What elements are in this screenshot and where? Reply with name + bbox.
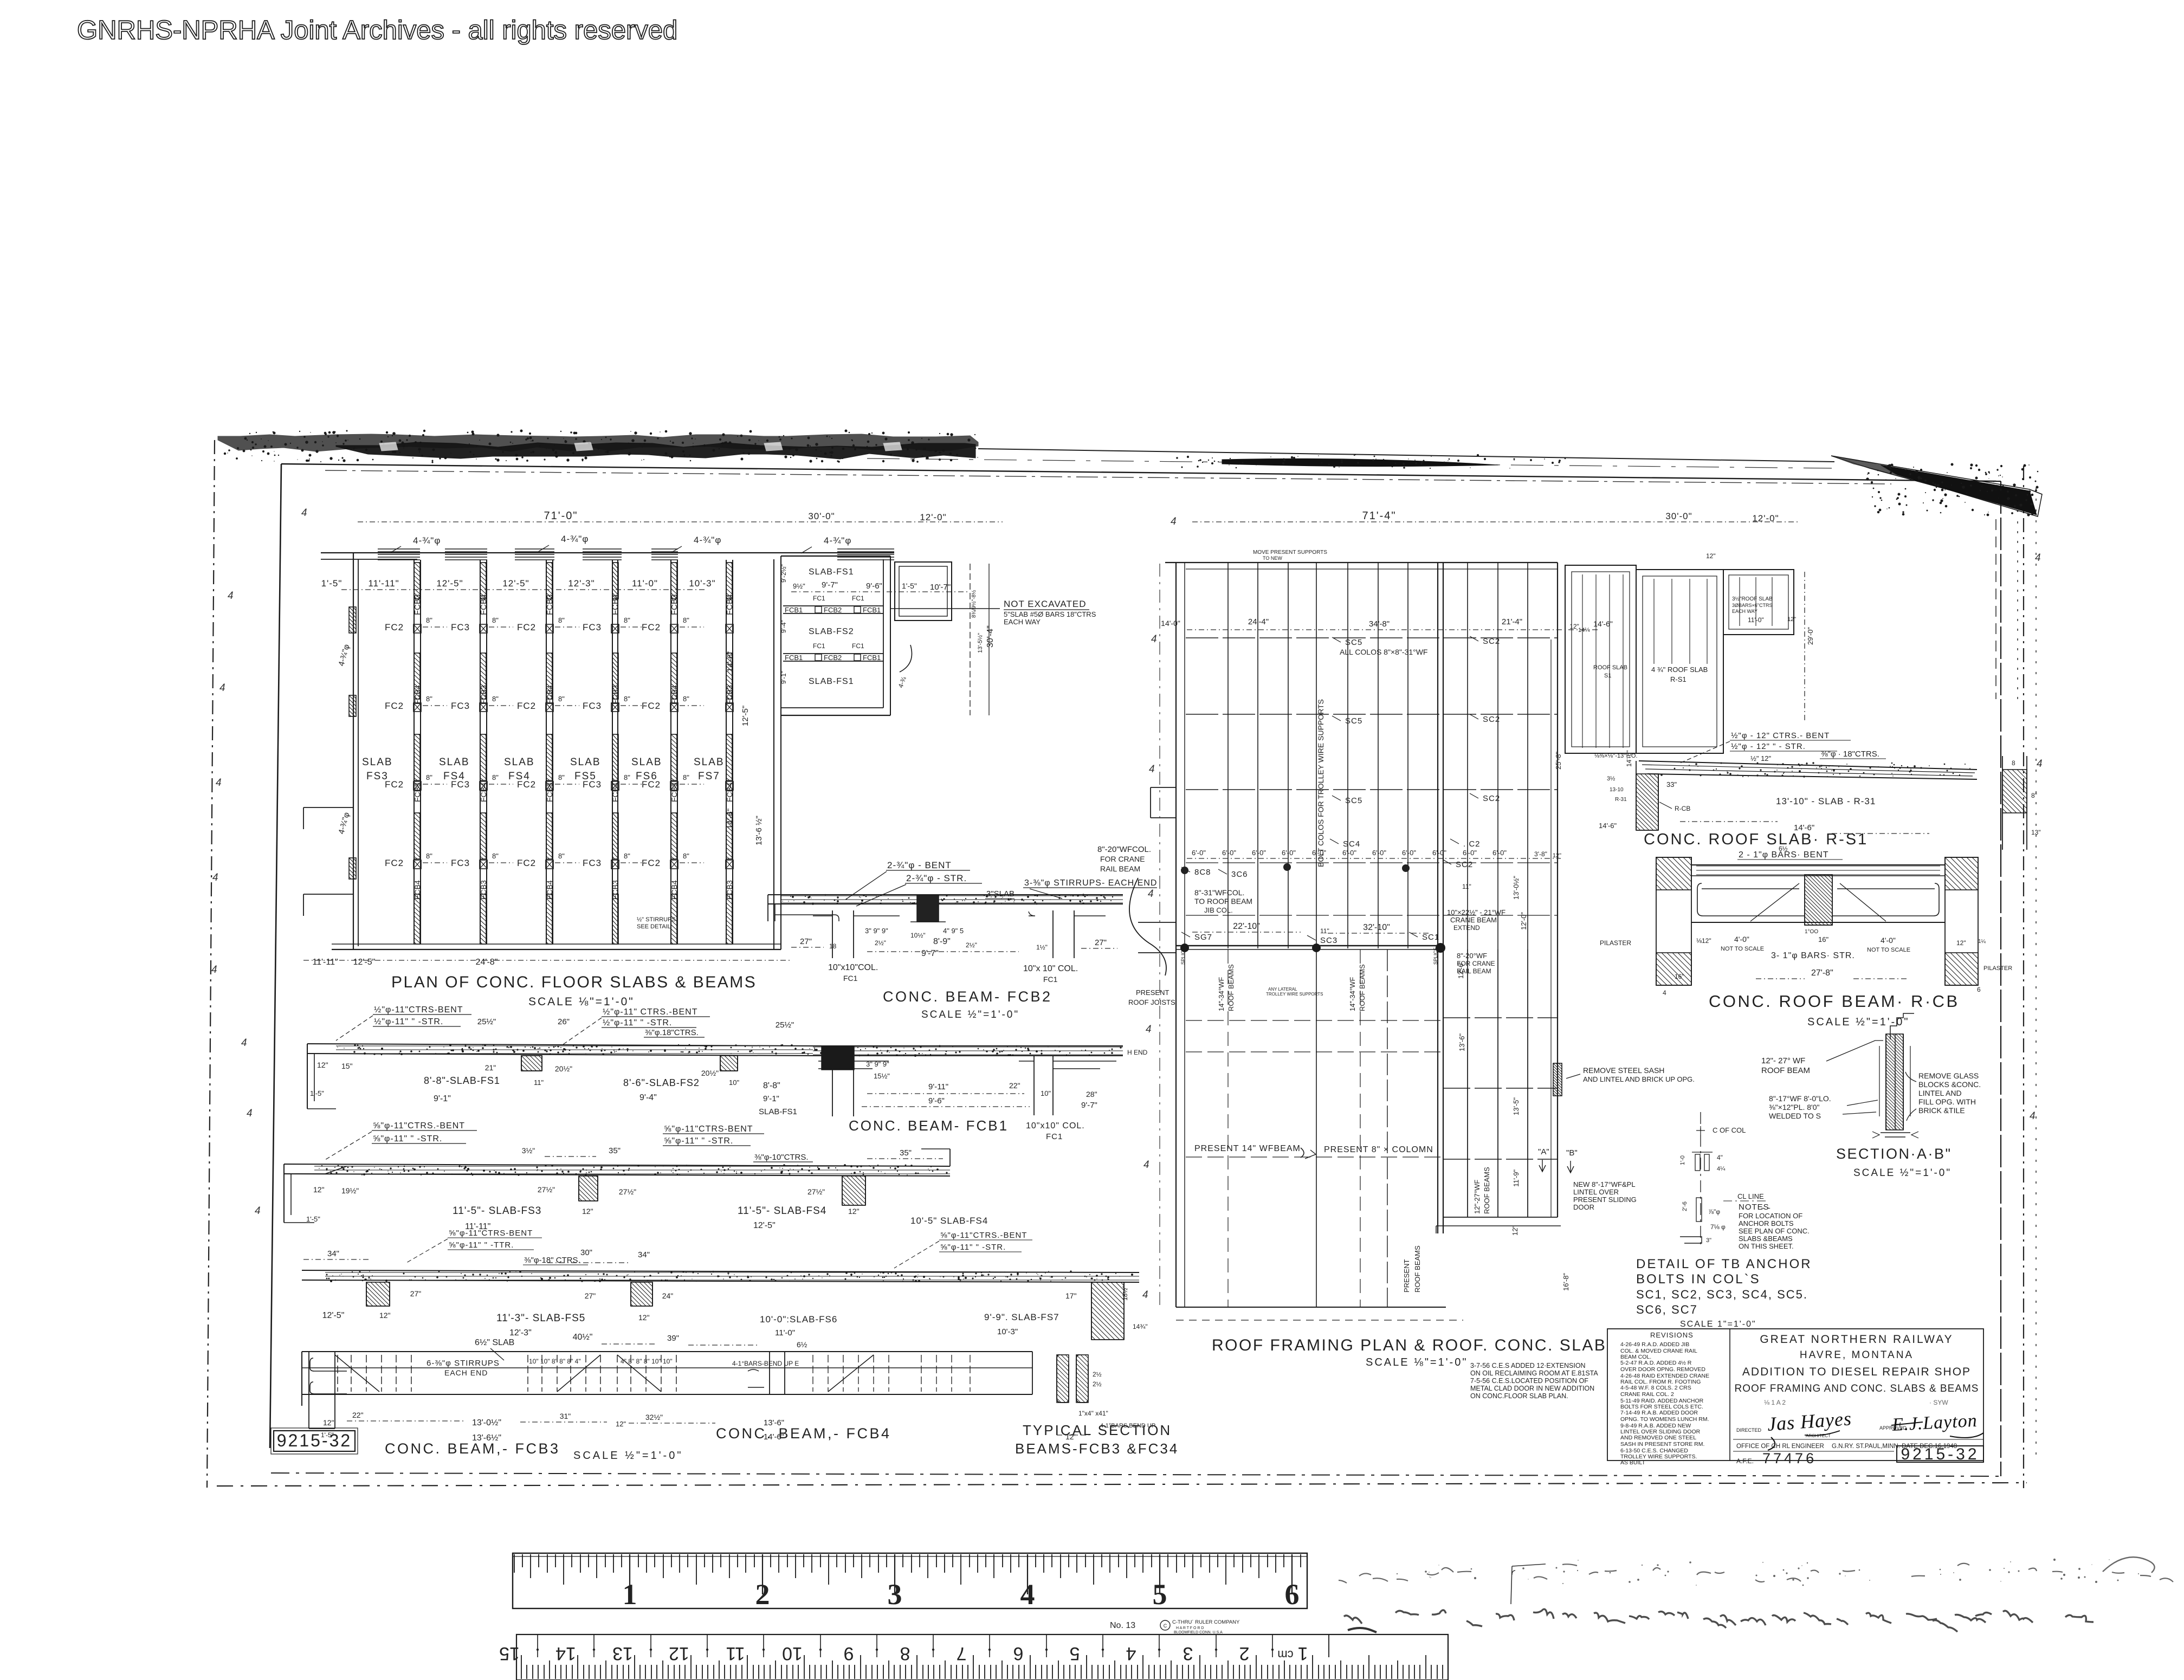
svg-text:GREAT NORTHERN RAILWAY: GREAT NORTHERN RAILWAY xyxy=(1760,1333,1953,1346)
svg-text:4: 4 xyxy=(1143,1159,1149,1171)
svg-text:12'-5": 12'-5" xyxy=(353,958,376,967)
svg-text:12'-5": 12'-5" xyxy=(322,1311,345,1320)
svg-text:4: 4 xyxy=(1148,888,1154,900)
svg-text:14¾": 14¾" xyxy=(1133,1323,1148,1330)
svg-text:SECTION·A·B": SECTION·A·B" xyxy=(1836,1146,1952,1162)
svg-text:4-¾"φ: 4-¾"φ xyxy=(413,535,441,546)
svg-text:SC1, SC2, SC3, SC4, SC5.: SC1, SC2, SC3, SC4, SC5. xyxy=(1636,1288,1808,1301)
svg-text:FCB4: FCB4 xyxy=(545,685,554,705)
svg-text:ROOF BEAM: ROOF BEAM xyxy=(1761,1066,1810,1075)
svg-text:FS7: FS7 xyxy=(698,771,720,782)
svg-text:SLAB: SLAB xyxy=(504,757,535,768)
svg-text:4: 4 xyxy=(2035,552,2041,564)
svg-text:REVISIONS: REVISIONS xyxy=(1650,1331,1694,1339)
svg-text:6½" SLAB: 6½" SLAB xyxy=(475,1338,514,1347)
svg-text:12": 12" xyxy=(1511,1225,1519,1236)
svg-text:ROOF BEAMS: ROOF BEAMS xyxy=(1227,964,1235,1011)
svg-text:FC2: FC2 xyxy=(642,701,661,711)
svg-text:4: 4 xyxy=(211,964,217,975)
svg-text:10"x 10" COL.: 10"x 10" COL. xyxy=(1023,964,1078,973)
svg-text:8": 8" xyxy=(624,616,630,624)
svg-text:12": 12" xyxy=(1787,616,1796,623)
svg-text:10'-3": 10'-3" xyxy=(689,578,715,589)
svg-text:8"-20"WFCOL.: 8"-20"WFCOL. xyxy=(1097,845,1151,854)
svg-text:4: 4 xyxy=(2037,758,2043,770)
svg-text:FCB4: FCB4 xyxy=(413,685,422,705)
svg-text:DOOR: DOOR xyxy=(1573,1203,1594,1211)
svg-text:10"x10" COL.: 10"x10" COL. xyxy=(1026,1121,1085,1130)
svg-text:30'-0": 30'-0" xyxy=(808,511,835,521)
svg-text:REMOVE GLASS: REMOVE GLASS xyxy=(1918,1071,1979,1080)
svg-text:6'-0": 6'-0" xyxy=(1282,849,1296,857)
svg-text:9'-1": 9'-1" xyxy=(763,1094,779,1103)
svg-text:"A": "A" xyxy=(1538,1147,1549,1156)
svg-text:PILASTER: PILASTER xyxy=(1983,965,2012,972)
svg-text:7-14-49 R.A.B. ADDED DOOR: 7-14-49 R.A.B. ADDED DOOR xyxy=(1620,1410,1698,1416)
svg-text:FOR LOCATION OF: FOR LOCATION OF xyxy=(1739,1212,1802,1220)
svg-text:12": 12" xyxy=(317,1061,328,1069)
svg-text:8": 8" xyxy=(426,852,432,860)
svg-text:10": 10" xyxy=(1041,1089,1051,1097)
svg-text:6-⅜"φ STIRRUPS: 6-⅜"φ STIRRUPS xyxy=(427,1359,500,1368)
svg-text:SLAB-FS1: SLAB-FS1 xyxy=(809,677,854,686)
svg-text:12": 12" xyxy=(848,1207,860,1216)
svg-text:4: 4 xyxy=(2030,1110,2036,1122)
svg-text:12": 12" xyxy=(616,1420,626,1428)
svg-text:3'-8": 3'-8" xyxy=(1534,850,1547,858)
svg-text:FC3: FC3 xyxy=(583,858,602,868)
svg-text:22": 22" xyxy=(352,1411,364,1419)
svg-text:H A R T F O R D: H A R T F O R D xyxy=(1176,1626,1204,1630)
svg-text:4: 4 xyxy=(1126,1643,1136,1664)
svg-text:8"-20°WF: 8"-20°WF xyxy=(1457,952,1487,960)
svg-text:FC1: FC1 xyxy=(813,642,825,650)
svg-text:13'-10" - SLAB - R-31: 13'-10" - SLAB - R-31 xyxy=(1776,796,1876,806)
svg-text:14'-6": 14'-6" xyxy=(726,651,735,672)
svg-text:FCB3: FCB3 xyxy=(479,685,488,705)
svg-text:15: 15 xyxy=(499,1643,520,1664)
svg-text:12": 12" xyxy=(1956,939,1966,947)
svg-text:11'-3"- SLAB-FS5: 11'-3"- SLAB-FS5 xyxy=(496,1313,585,1324)
svg-text:HAVRE, MONTANA: HAVRE, MONTANA xyxy=(1800,1349,1914,1361)
svg-text:C-THRU´ RULER COMPANY: C-THRU´ RULER COMPANY xyxy=(1172,1619,1240,1625)
svg-text:⅝"φ-11"CTRS.-BENT: ⅝"φ-11"CTRS.-BENT xyxy=(373,1121,465,1130)
svg-text:39": 39" xyxy=(667,1334,679,1343)
svg-text:½"φ-11" " -STR.: ½"φ-11" " -STR. xyxy=(374,1017,443,1026)
svg-text:12'-0": 12'-0" xyxy=(1520,912,1528,930)
svg-text:4'-0": 4'-0" xyxy=(1881,936,1896,945)
svg-text:3"SLAB: 3"SLAB xyxy=(986,889,1015,899)
svg-text:9'-9". SLAB-FS7: 9'-9". SLAB-FS7 xyxy=(984,1312,1059,1322)
svg-text:FC3: FC3 xyxy=(451,858,470,868)
svg-text:9'-4": 9'-4" xyxy=(639,1093,657,1102)
svg-text:3½: 3½ xyxy=(1607,776,1615,782)
svg-text:11": 11" xyxy=(1462,883,1471,890)
svg-text:27½": 27½" xyxy=(619,1187,636,1196)
svg-text:34": 34" xyxy=(327,1249,339,1258)
svg-text:6'-0": 6'-0" xyxy=(1192,849,1206,857)
svg-text:28": 28" xyxy=(1086,1090,1097,1099)
svg-text:6½: 6½ xyxy=(1779,845,1788,852)
svg-text:SLAB-FS1: SLAB-FS1 xyxy=(809,567,854,577)
svg-text:13'-6 ½": 13'-6 ½" xyxy=(754,816,764,845)
svg-text:16": 16" xyxy=(1818,935,1828,944)
svg-text:9'-11": 9'-11" xyxy=(928,1082,948,1091)
svg-text:25½": 25½" xyxy=(477,1017,496,1026)
svg-text:4¼: 4¼ xyxy=(1717,1166,1726,1172)
svg-text:8'-8"-SLAB-FS1: 8'-8"-SLAB-FS1 xyxy=(424,1075,500,1086)
svg-text:29'-0": 29'-0" xyxy=(1806,626,1814,645)
svg-text:8": 8" xyxy=(683,695,689,703)
svg-text:4: 4 xyxy=(1663,989,1666,997)
svg-text:19½": 19½" xyxy=(341,1186,359,1195)
svg-text:FCB3: FCB3 xyxy=(479,880,488,900)
svg-text:8": 8" xyxy=(558,695,565,703)
svg-text:REMOVE STEEL SASH: REMOVE STEEL SASH xyxy=(1583,1066,1664,1075)
svg-text:PRESENT: PRESENT xyxy=(1403,1259,1411,1293)
svg-text:⅛ 1 A 2: ⅛ 1 A 2 xyxy=(1764,1399,1786,1406)
svg-text:½"φ-11" CTRS.-BENT: ½"φ-11" CTRS.-BENT xyxy=(603,1007,697,1017)
svg-text:6'-0": 6'-0" xyxy=(1222,849,1236,857)
svg-text:CONC. BEAM,- FCB4: CONC. BEAM,- FCB4 xyxy=(716,1425,891,1442)
svg-text:12'-5": 12'-5" xyxy=(436,578,463,589)
svg-text:10": 10" xyxy=(729,1078,739,1087)
svg-text:2'-6: 2'-6 xyxy=(1682,1201,1688,1211)
svg-text:SLAB: SLAB xyxy=(439,757,470,768)
svg-text:9'-7": 9'-7" xyxy=(822,580,838,590)
svg-text:22'-10": 22'-10" xyxy=(1233,922,1260,931)
svg-text:SG7: SG7 xyxy=(1194,933,1212,942)
svg-text:8": 8" xyxy=(426,773,432,781)
svg-text:BRICK &TILE: BRICK &TILE xyxy=(1918,1106,1965,1115)
svg-text:FC2: FC2 xyxy=(385,858,404,868)
svg-text:FOR CRANE: FOR CRANE xyxy=(1100,855,1145,863)
svg-text:SCALE ½"=1'-0": SCALE ½"=1'-0" xyxy=(921,1009,1019,1020)
svg-text:CONC. ROOF SLAB· R-S1: CONC. ROOF SLAB· R-S1 xyxy=(1644,831,1868,848)
svg-text:OPNG. TO WOMENS LUNCH RM.: OPNG. TO WOMENS LUNCH RM. xyxy=(1620,1416,1709,1423)
svg-text:4: 4 xyxy=(255,1205,261,1217)
svg-text:24'-4": 24'-4" xyxy=(1248,617,1269,626)
svg-text:2-¾"φ - STR.: 2-¾"φ - STR. xyxy=(906,873,967,883)
svg-text:15½": 15½" xyxy=(874,1072,890,1080)
svg-text:BOLTS IN COL`S: BOLTS IN COL`S xyxy=(1636,1272,1761,1287)
svg-text:24": 24" xyxy=(662,1291,674,1300)
svg-text:30'-4": 30'-4" xyxy=(986,625,995,648)
svg-text:FC2: FC2 xyxy=(517,858,536,868)
svg-text:OVER DOOR OPNG. REMOVED: OVER DOOR OPNG. REMOVED xyxy=(1620,1366,1705,1373)
svg-text:ROOF SLAB: ROOF SLAB xyxy=(1593,664,1627,671)
svg-text:71'-0": 71'-0" xyxy=(544,510,578,522)
svg-text:4-5-48 W.F. 8 COLS. 2 CRS: 4-5-48 W.F. 8 COLS. 2 CRS xyxy=(1620,1385,1691,1391)
svg-text:6: 6 xyxy=(1977,986,1981,993)
svg-text:4'-0": 4'-0" xyxy=(1734,935,1749,944)
svg-text:R-31: R-31 xyxy=(1615,797,1627,803)
svg-text:30": 30" xyxy=(580,1248,592,1257)
svg-text:⅝"φ-11" " -TTR.: ⅝"φ-11" " -TTR. xyxy=(449,1240,514,1250)
svg-text:C: C xyxy=(1164,1623,1167,1629)
svg-text:ON THIS SHEET.: ON THIS SHEET. xyxy=(1739,1242,1794,1250)
svg-text:2: 2 xyxy=(1239,1643,1250,1664)
svg-text:4: 4 xyxy=(216,777,222,789)
svg-text:9½": 9½" xyxy=(793,582,805,590)
svg-text:3: 3 xyxy=(1183,1643,1193,1664)
svg-text:8'-8": 8'-8" xyxy=(763,1081,780,1090)
svg-text:6'-0": 6'-0" xyxy=(1252,849,1266,857)
svg-text:PRESENT: PRESENT xyxy=(1136,988,1169,997)
svg-text:12'-0": 12'-0" xyxy=(1752,513,1779,524)
svg-text:RAIL BEAM: RAIL BEAM xyxy=(1100,864,1140,873)
svg-text:⅜"×12"PL. 8'0": ⅜"×12"PL. 8'0" xyxy=(1769,1103,1820,1112)
svg-text:4: 4 xyxy=(212,872,218,883)
svg-text:½"φ-11" " -STR.: ½"φ-11" " -STR. xyxy=(603,1018,672,1028)
svg-text:FC2: FC2 xyxy=(642,858,661,868)
svg-text:16'-8": 16'-8" xyxy=(1562,1272,1570,1291)
svg-text:9'-2½": 9'-2½" xyxy=(780,564,787,583)
svg-text:6'-0": 6'-0" xyxy=(1432,849,1446,857)
svg-text:8": 8" xyxy=(624,695,630,703)
svg-text:8'-6"-SLAB-FS2: 8'-6"-SLAB-FS2 xyxy=(623,1077,700,1088)
svg-text:AND LINTEL AND BRICK UP OPG.: AND LINTEL AND BRICK UP OPG. xyxy=(1583,1075,1695,1083)
svg-text:5: 5 xyxy=(1070,1643,1080,1664)
svg-text:27": 27" xyxy=(800,937,812,946)
svg-text:FC3: FC3 xyxy=(583,622,602,632)
svg-text:10½": 10½" xyxy=(910,932,926,939)
svg-text:10'-5" SLAB-FS4: 10'-5" SLAB-FS4 xyxy=(910,1216,988,1226)
svg-text:⅝"φ-11"CTRS-BENT: ⅝"φ-11"CTRS-BENT xyxy=(449,1229,533,1238)
svg-text:FCB4: FCB4 xyxy=(725,783,734,802)
svg-text:6'-0": 6'-0" xyxy=(1492,849,1507,857)
svg-text:12: 12 xyxy=(669,1643,689,1664)
svg-text:1'-5": 1'-5" xyxy=(902,581,917,590)
svg-text:"B": "B" xyxy=(1566,1148,1578,1158)
svg-text:8": 8" xyxy=(492,695,499,703)
svg-text:CONC. BEAM- FCB1: CONC. BEAM- FCB1 xyxy=(849,1117,1009,1134)
svg-text:ALL COLOS 8"×8"-31°WF: ALL COLOS 8"×8"-31°WF xyxy=(1340,648,1427,656)
svg-text:1¼: 1¼ xyxy=(1978,938,1986,945)
svg-text:17": 17" xyxy=(1065,1291,1077,1300)
svg-text:3" 9" 9": 3" 9" 9" xyxy=(866,1060,889,1068)
svg-text:ADDITION TO DIESEL REPAIR SHOP: ADDITION TO DIESEL REPAIR SHOP xyxy=(1742,1366,1971,1378)
svg-text:4: 4 xyxy=(219,682,225,694)
svg-text:25½": 25½" xyxy=(776,1020,794,1030)
svg-text:3½"ROOF SLAB: 3½"ROOF SLAB xyxy=(1732,596,1773,602)
svg-text:13": 13" xyxy=(2031,829,2041,836)
svg-text:2½: 2½ xyxy=(1093,1371,1102,1378)
svg-text:ANY LATERAL: ANY LATERAL xyxy=(1268,987,1297,992)
svg-text:12": 12" xyxy=(379,1311,391,1320)
svg-text:10"x10"COL.: 10"x10"COL. xyxy=(828,963,878,972)
svg-text:⅜"φ-10"CTRS.: ⅜"φ-10"CTRS. xyxy=(754,1153,809,1162)
svg-text:4-¾"φ: 4-¾"φ xyxy=(694,535,721,545)
svg-text:2½": 2½" xyxy=(966,941,977,949)
svg-text:NOT TO SCALE: NOT TO SCALE xyxy=(1867,947,1910,953)
svg-text:1°OO: 1°OO xyxy=(1805,929,1818,935)
svg-text:11": 11" xyxy=(534,1078,544,1087)
svg-text:MOVE PRESENT SUPPORTS: MOVE PRESENT SUPPORTS xyxy=(1253,550,1327,555)
svg-text:SC5: SC5 xyxy=(1345,796,1362,805)
svg-text:JIB COL.: JIB COL. xyxy=(1204,906,1233,914)
svg-text:ROOF FRAMING PLAN & ROOF. CONC: ROOF FRAMING PLAN & ROOF. CONC. SLAB xyxy=(1212,1336,1606,1354)
svg-text:CRANE BEAM: CRANE BEAM xyxy=(1450,916,1497,924)
svg-text:7: 7 xyxy=(957,1643,967,1664)
svg-text:ROOF JOISTS: ROOF JOISTS xyxy=(1128,998,1175,1006)
svg-text:30'-0": 30'-0" xyxy=(1665,511,1692,521)
svg-text:4-¾"φ: 4-¾"φ xyxy=(824,535,851,546)
svg-text:SC5: SC5 xyxy=(1345,638,1362,647)
svg-text:33": 33" xyxy=(1666,780,1677,789)
svg-text:40½": 40½" xyxy=(573,1333,593,1342)
svg-text:4: 4 xyxy=(1151,634,1157,645)
svg-text:1'-0: 1'-0 xyxy=(1679,1155,1686,1165)
svg-text:10" 10" 8" 8" 8" 4": 10" 10" 8" 8" 8" 4" xyxy=(529,1358,581,1365)
svg-text:½" STIRRUPS: ½" STIRRUPS xyxy=(637,916,676,923)
svg-text:11'-5"- SLAB-FS4: 11'-5"- SLAB-FS4 xyxy=(738,1205,826,1217)
svg-text:FCB4: FCB4 xyxy=(479,595,488,615)
svg-text:SC2: SC2 xyxy=(1483,794,1500,803)
svg-text:9'-1": 9'-1" xyxy=(434,1094,451,1103)
svg-text:1"x4" x41": 1"x4" x41" xyxy=(1078,1410,1108,1417)
svg-text:SLABS &BEAMS: SLABS &BEAMS xyxy=(1739,1235,1793,1243)
svg-text:FCB4: FCB4 xyxy=(611,595,620,615)
svg-text:2½": 2½" xyxy=(875,939,886,947)
svg-text:FCB4: FCB4 xyxy=(479,783,488,802)
svg-text:FCB3: FCB3 xyxy=(413,783,422,802)
svg-text:FCB4: FCB4 xyxy=(545,880,554,900)
svg-text:11'-0": 11'-0" xyxy=(632,578,658,589)
svg-text:8": 8" xyxy=(492,852,499,860)
svg-text:34'-8": 34'-8" xyxy=(1369,619,1390,629)
svg-text:25'-8": 25'-8" xyxy=(1554,751,1562,770)
svg-text:34": 34" xyxy=(638,1250,650,1259)
svg-text:FCB2: FCB2 xyxy=(824,606,842,614)
svg-text:27'-8": 27'-8" xyxy=(1811,968,1833,978)
svg-text:27": 27" xyxy=(585,1291,596,1300)
svg-text:· SYW: · SYW xyxy=(1929,1399,1948,1406)
svg-text:12": 12" xyxy=(582,1207,593,1216)
svg-text:FCB4: FCB4 xyxy=(670,880,679,900)
svg-text:GNRHS-NPRHA Joint Archives - a: GNRHS-NPRHA Joint Archives - all rights … xyxy=(77,16,677,45)
svg-text:SLAB: SLAB xyxy=(362,757,393,768)
svg-text:4 ¾" ROOF SLAB: 4 ¾" ROOF SLAB xyxy=(1651,665,1708,674)
svg-text:FILL OPG. WITH: FILL OPG. WITH xyxy=(1918,1097,1976,1106)
svg-text:3": 3" xyxy=(1706,1237,1711,1244)
svg-text:⅜"φ · 18"CTRS.: ⅜"φ · 18"CTRS. xyxy=(1821,749,1879,759)
svg-text:24'-8": 24'-8" xyxy=(476,958,498,967)
svg-text:21'-4": 21'-4" xyxy=(1502,617,1522,626)
svg-text:SC3: SC3 xyxy=(1320,936,1337,945)
svg-text:21": 21" xyxy=(485,1063,496,1072)
svg-text:13: 13 xyxy=(612,1643,633,1664)
svg-text:8¾/9½"-8½: 8¾/9½"-8½ xyxy=(971,590,977,618)
svg-text:SC6, SC7: SC6, SC7 xyxy=(1636,1303,1698,1316)
svg-text:⅞"φ: ⅞"φ xyxy=(1708,1208,1720,1216)
svg-text:8": 8" xyxy=(558,616,565,624)
svg-text:FC3: FC3 xyxy=(583,701,602,711)
svg-text:20½": 20½" xyxy=(555,1064,572,1073)
svg-text:6: 6 xyxy=(1285,1578,1300,1611)
svg-text:FCB3: FCB3 xyxy=(545,783,554,802)
svg-text:PRESENT 14" WFBEAM: PRESENT 14" WFBEAM xyxy=(1194,1144,1301,1153)
svg-text:4": 4" xyxy=(1717,1154,1723,1161)
svg-text:8": 8" xyxy=(558,773,565,781)
svg-text:12'-5": 12'-5" xyxy=(753,1221,776,1230)
svg-text:FS4: FS4 xyxy=(508,771,531,782)
svg-text:PLAN OF CONC. FLOOR SLABS & BE: PLAN OF CONC. FLOOR SLABS & BEAMS xyxy=(391,973,757,991)
svg-text:TO NEW: TO NEW xyxy=(1263,555,1282,561)
svg-text:11'-0": 11'-0" xyxy=(775,1328,795,1337)
svg-text:SCALE 1"=1'-0": SCALE 1"=1'-0" xyxy=(1680,1320,1756,1329)
svg-text:H END: H END xyxy=(1127,1049,1148,1056)
svg-text:31": 31" xyxy=(560,1412,571,1420)
svg-text:1'-5": 1'-5" xyxy=(306,1215,320,1223)
svg-text:11'-5"- SLAB-FS3: 11'-5"- SLAB-FS3 xyxy=(453,1205,541,1217)
svg-text:FCB3: FCB3 xyxy=(725,880,734,900)
svg-text:8": 8" xyxy=(624,852,630,860)
svg-text:12'-6": 12'-6" xyxy=(1457,960,1465,979)
svg-text:CRANE RAIL COL. 2: CRANE RAIL COL. 2 xyxy=(1620,1391,1674,1398)
svg-text:13'-6": 13'-6" xyxy=(1458,1033,1466,1051)
svg-text:SCALE ½"=1'-0": SCALE ½"=1'-0" xyxy=(1853,1167,1952,1179)
svg-text:10'-0":SLAB-FS6: 10'-0":SLAB-FS6 xyxy=(760,1314,837,1324)
svg-text:BOLT COLOS FOR TROLLEY WIRE SU: BOLT COLOS FOR TROLLEY WIRE SUPPORTS xyxy=(1316,699,1325,867)
svg-text:15": 15" xyxy=(341,1062,353,1070)
svg-text:14"-34°WF: 14"-34°WF xyxy=(1348,977,1356,1011)
svg-text:FCB3: FCB3 xyxy=(413,595,422,615)
svg-text:32'-10": 32'-10" xyxy=(1363,923,1390,932)
svg-text:6½: 6½ xyxy=(797,1340,807,1349)
svg-text:9'-6": 9'-6" xyxy=(928,1096,945,1106)
svg-text:FC1: FC1 xyxy=(1043,975,1058,984)
svg-text:SC2: SC2 xyxy=(1456,860,1473,869)
svg-text:27½": 27½" xyxy=(807,1187,825,1196)
svg-text:FC2: FC2 xyxy=(385,622,404,632)
svg-text:4: 4 xyxy=(1149,764,1155,775)
svg-text:SC2: SC2 xyxy=(1483,715,1500,724)
svg-text:6'-0": 6'-0" xyxy=(1372,849,1386,857)
svg-text:6'-0": 6'-0" xyxy=(1463,849,1477,857)
svg-text:AS BUILT: AS BUILT xyxy=(1620,1459,1645,1466)
svg-text:SCALE ½"=1'-0": SCALE ½"=1'-0" xyxy=(573,1450,683,1462)
svg-text:TROLLEY WIRE SUPPORTS: TROLLEY WIRE SUPPORTS xyxy=(1266,992,1323,997)
svg-text:12": 12" xyxy=(323,1418,334,1427)
svg-text:8": 8" xyxy=(492,773,499,781)
svg-text:FC1: FC1 xyxy=(843,974,858,983)
svg-text:12"-27°WF: 12"-27°WF xyxy=(1473,1180,1481,1214)
svg-text:1: 1 xyxy=(1298,1643,1308,1664)
svg-text:8"-17°WF 8'-0"LO.: 8"-17°WF 8'-0"LO. xyxy=(1769,1094,1831,1103)
svg-text:No. 13: No. 13 xyxy=(1110,1621,1135,1630)
svg-text:⅛12": ⅛12" xyxy=(1696,937,1711,945)
svg-text:FCB3: FCB3 xyxy=(670,595,679,615)
svg-text:11'-11": 11'-11" xyxy=(312,958,338,967)
svg-text:FCB3: FCB3 xyxy=(670,783,679,802)
svg-text:FS4: FS4 xyxy=(443,771,466,782)
svg-text:FCB3: FCB3 xyxy=(545,595,554,615)
svg-text:10: 10 xyxy=(782,1643,803,1664)
svg-text:3: 3 xyxy=(888,1578,902,1611)
svg-text:12": 12" xyxy=(1706,552,1716,560)
svg-text:3ØBARS×6"CTRS: 3ØBARS×6"CTRS xyxy=(1732,603,1772,608)
svg-text:FCB3: FCB3 xyxy=(611,880,619,900)
svg-text:FC1: FC1 xyxy=(852,595,864,602)
svg-text:OFFICE OF CH RL ENGINEER: OFFICE OF CH RL ENGINEER xyxy=(1736,1443,1824,1450)
svg-text:FC1: FC1 xyxy=(813,595,825,602)
svg-text:8": 8" xyxy=(426,616,432,624)
svg-text:FC3: FC3 xyxy=(451,701,470,711)
svg-text:FS5: FS5 xyxy=(574,771,597,782)
svg-text:FCB2: FCB2 xyxy=(824,654,842,662)
svg-text:EACH WAY: EACH WAY xyxy=(1004,618,1041,626)
